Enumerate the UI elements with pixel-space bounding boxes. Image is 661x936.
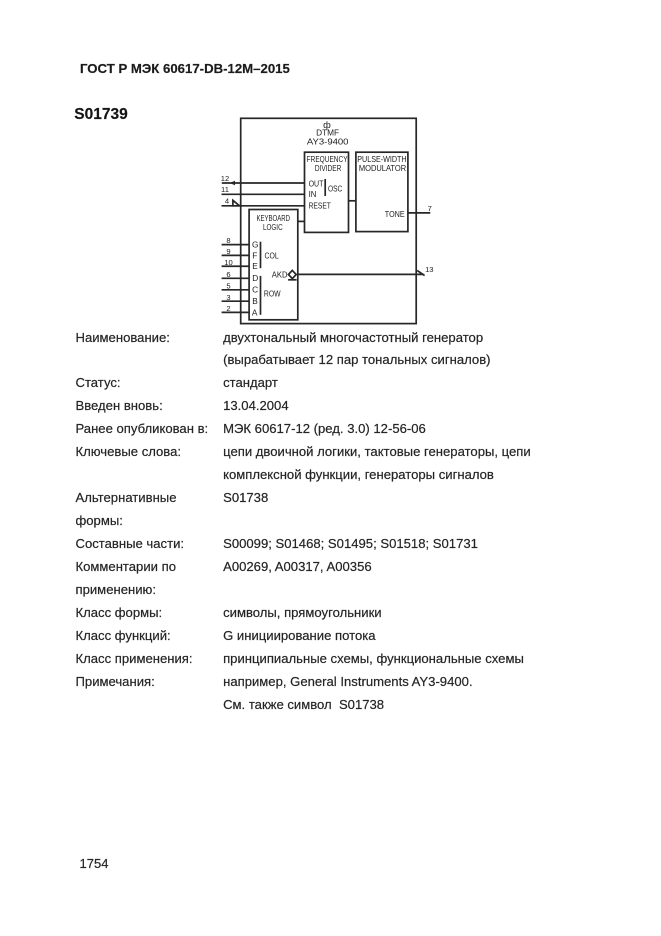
svg-text:3: 3 — [226, 293, 230, 302]
svg-text:OSC: OSC — [328, 184, 342, 193]
svg-text:G: G — [252, 240, 258, 250]
svg-text:D: D — [252, 273, 258, 283]
svg-text:MODULATOR: MODULATOR — [359, 164, 406, 173]
svg-text:TONE: TONE — [385, 210, 405, 219]
svg-text:RESET: RESET — [309, 201, 331, 210]
svg-text:DIVIDER: DIVIDER — [315, 164, 341, 173]
svg-text:11: 11 — [221, 185, 229, 194]
svg-text:2: 2 — [226, 304, 230, 313]
svg-text:FREQUENCY: FREQUENCY — [307, 155, 348, 164]
svg-text:KEYBOARD: KEYBOARD — [256, 214, 290, 223]
svg-text:C: C — [252, 285, 258, 295]
svg-text:OUT: OUT — [309, 180, 324, 189]
svg-text:COL: COL — [265, 251, 280, 260]
svg-text:AY3-9400: AY3-9400 — [307, 136, 349, 146]
svg-text:6: 6 — [226, 270, 230, 279]
svg-text:7: 7 — [428, 204, 432, 213]
svg-text:LOGIC: LOGIC — [263, 223, 283, 232]
svg-text:B: B — [252, 296, 258, 306]
svg-text:9: 9 — [226, 247, 230, 256]
svg-text:4: 4 — [225, 196, 229, 205]
svg-text:12: 12 — [221, 174, 229, 183]
svg-text:E: E — [252, 261, 258, 271]
svg-text:F: F — [252, 250, 257, 260]
svg-text:5: 5 — [226, 281, 230, 290]
svg-text:AKD: AKD — [272, 270, 288, 279]
svg-text:IN: IN — [309, 190, 317, 199]
svg-text:A: A — [252, 307, 258, 317]
svg-text:PULSE-WIDTH: PULSE-WIDTH — [357, 155, 406, 164]
svg-text:13: 13 — [425, 265, 433, 274]
svg-text:8: 8 — [226, 236, 230, 245]
svg-text:10: 10 — [224, 258, 232, 267]
svg-text:ROW: ROW — [264, 290, 281, 299]
